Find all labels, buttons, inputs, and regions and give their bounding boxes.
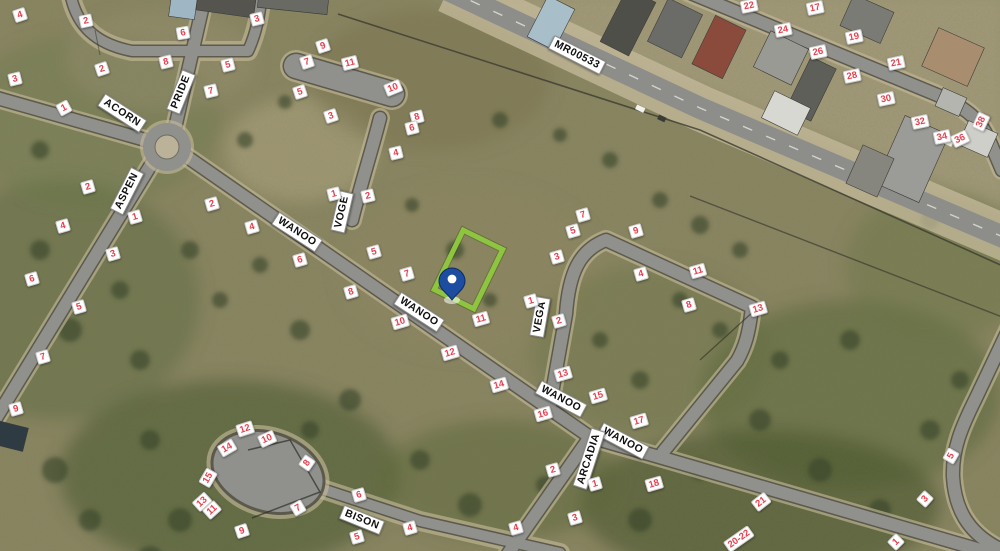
parcel-number-chip: 24 bbox=[774, 22, 793, 38]
parcel-number-chip: 8 bbox=[681, 297, 697, 313]
parcel-number-chip: 14 bbox=[217, 438, 238, 458]
parcel-number-chip: 5 bbox=[349, 529, 365, 545]
parcel-number-chip: 1 bbox=[887, 533, 905, 551]
parcel-number-chip: 26 bbox=[809, 44, 828, 60]
parcel-number-chip: 2 bbox=[78, 13, 93, 28]
parcel-number-chip: 5 bbox=[220, 57, 236, 73]
parcel-number-chip: 8 bbox=[298, 454, 316, 472]
parcel-number-chip: 5 bbox=[942, 447, 960, 465]
parcel-number-chip: 9 bbox=[234, 523, 250, 539]
parcel-number-chip: 12 bbox=[440, 344, 460, 361]
parcel-number-chip: 17 bbox=[806, 0, 825, 16]
street-name-label: PRIDE bbox=[166, 69, 196, 115]
parcel-number-chip: 11 bbox=[341, 55, 360, 71]
parcel-number-chip: 6 bbox=[175, 25, 190, 40]
parcel-number-chip: 10 bbox=[383, 79, 403, 97]
parcel-number-chip: 5 bbox=[292, 84, 308, 100]
parcel-number-chip: 4 bbox=[402, 520, 418, 536]
parcel-number-chip: 3 bbox=[916, 490, 934, 508]
parcel-number-chip: 15 bbox=[588, 387, 608, 404]
parcel-number-chip: 28 bbox=[843, 68, 862, 84]
street-name-label: ACORN bbox=[97, 93, 147, 133]
parcel-number-chip: 32 bbox=[911, 114, 930, 130]
parcel-number-chip: 16 bbox=[533, 405, 553, 422]
parcel-number-chip: 2 bbox=[204, 196, 220, 212]
parcel-number-chip: 7 bbox=[35, 349, 51, 365]
parcel-number-chip: 2 bbox=[545, 462, 561, 478]
parcel-number-chip: 3 bbox=[7, 71, 23, 87]
parcel-number-chip: 11 bbox=[471, 311, 490, 328]
parcel-number-chip: 2 bbox=[360, 188, 376, 204]
parcel-number-chip: 5 bbox=[71, 299, 87, 315]
parcel-number-chip: 4 bbox=[388, 145, 404, 161]
parcel-number-chip: 6 bbox=[292, 252, 308, 268]
parcel-number-chip: 13 bbox=[553, 365, 573, 382]
parcel-number-chip: 6 bbox=[351, 487, 367, 503]
parcel-number-chip: 22 bbox=[740, 0, 759, 14]
parcel-number-chip: 9 bbox=[315, 38, 331, 54]
parcel-number-chip: 7 bbox=[203, 83, 219, 99]
parcel-number-chip: 5 bbox=[565, 223, 581, 239]
parcel-number-chip: 15 bbox=[198, 468, 218, 489]
parcel-number-chip: 38 bbox=[972, 112, 991, 133]
street-name-label: WANOO bbox=[271, 212, 323, 253]
parcel-number-chip: 14 bbox=[489, 376, 509, 393]
street-name-label: WANOO bbox=[597, 422, 650, 460]
aerial-map[interactable]: ACORNPRIDEASPENVOGEWANOOWANOOWANOOWANOOV… bbox=[0, 0, 1000, 551]
parcel-number-chip: 7 bbox=[399, 266, 415, 282]
parcel-number-chip: 7 bbox=[575, 207, 591, 223]
parcel-number-chip: 11 bbox=[688, 263, 707, 280]
parcel-number-chip: 4 bbox=[633, 266, 649, 282]
parcel-number-chip: 4 bbox=[12, 7, 28, 23]
parcel-number-chip: 7 bbox=[289, 499, 307, 517]
parcel-number-chip: 10 bbox=[257, 430, 277, 449]
parcel-number-chip: 3 bbox=[323, 108, 339, 124]
parcel-number-chip: 6 bbox=[404, 120, 420, 136]
parcel-number-chip: 2 bbox=[94, 61, 110, 77]
street-name-label: ASPEN bbox=[110, 167, 145, 216]
parcel-number-chip: 2 bbox=[80, 179, 96, 195]
parcel-number-chip: 8 bbox=[343, 284, 359, 300]
street-name-label: MR00533 bbox=[548, 35, 606, 75]
parcel-number-chip: 18 bbox=[644, 475, 664, 492]
parcel-number-chip: 3 bbox=[249, 11, 265, 27]
parcel-number-chip: 5 bbox=[366, 244, 382, 260]
parcel-number-chip: 1 bbox=[587, 476, 603, 492]
parcel-number-chip: 4 bbox=[55, 218, 71, 234]
parcel-number-chip: 21 bbox=[750, 492, 771, 512]
parcel-number-chip: 13 bbox=[748, 300, 768, 317]
parcel-number-chip: 10 bbox=[390, 313, 410, 330]
parcel-number-chip: 3 bbox=[105, 246, 121, 262]
parcel-number-chip: 36 bbox=[950, 130, 971, 149]
parcel-number-chip: 1 bbox=[55, 99, 73, 117]
parcel-number-chip: 6 bbox=[24, 271, 40, 287]
parcel-number-chip: 34 bbox=[933, 129, 952, 145]
parcel-number-chip: 20-22 bbox=[723, 525, 755, 551]
parcel-number-chip: 4 bbox=[508, 520, 524, 536]
parcel-number-chip: 19 bbox=[845, 29, 864, 45]
parcel-number-chip: 21 bbox=[887, 55, 906, 71]
parcel-number-chip: 3 bbox=[567, 510, 583, 526]
parcel-number-chip: 8 bbox=[158, 54, 174, 70]
parcel-number-chip: 9 bbox=[628, 223, 644, 239]
parcel-number-chip: 3 bbox=[549, 249, 565, 265]
parcel-number-chip: 4 bbox=[244, 219, 260, 235]
parcel-number-chip: 2 bbox=[551, 313, 567, 329]
parcel-number-chip: 17 bbox=[629, 412, 649, 429]
parcel-number-chip: 7 bbox=[299, 54, 315, 70]
map-overlay-layer: ACORNPRIDEASPENVOGEWANOOWANOOWANOOWANOOV… bbox=[0, 0, 1000, 551]
parcel-number-chip: 30 bbox=[877, 91, 896, 107]
parcel-number-chip: 1 bbox=[127, 209, 143, 225]
parcel-number-chip: 9 bbox=[8, 401, 24, 417]
parcel-number-chip: 12 bbox=[235, 420, 255, 437]
